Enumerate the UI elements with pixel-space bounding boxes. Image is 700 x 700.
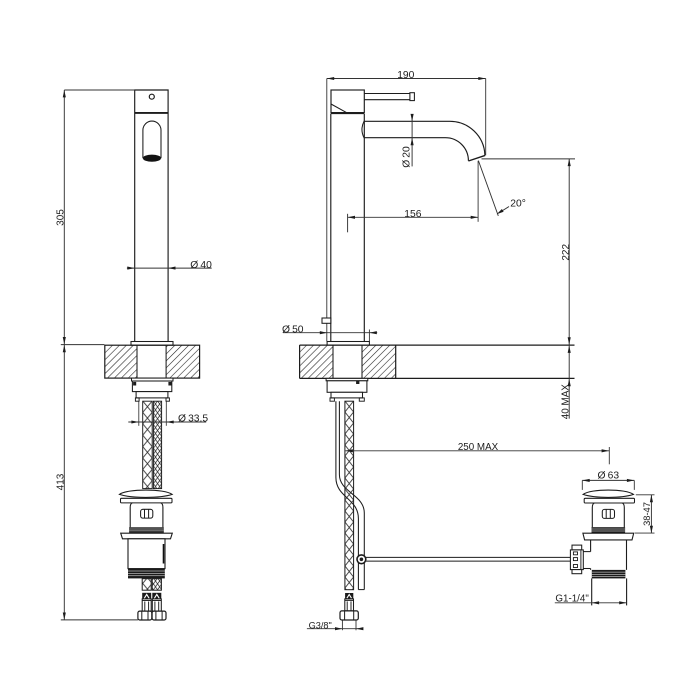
svg-text:Ø 40: Ø 40 (190, 260, 212, 271)
svg-text:250 MAX: 250 MAX (458, 442, 499, 453)
svg-text:305: 305 (56, 209, 67, 226)
svg-text:40 MAX: 40 MAX (560, 384, 571, 420)
svg-text:Ø 20: Ø 20 (401, 146, 412, 168)
svg-text:222: 222 (561, 244, 572, 261)
svg-text:20°: 20° (510, 199, 526, 210)
svg-text:156: 156 (404, 209, 421, 220)
svg-text:Ø 50: Ø 50 (282, 324, 304, 335)
svg-text:190: 190 (397, 70, 414, 81)
svg-text:413: 413 (56, 473, 67, 490)
svg-text:38-47: 38-47 (642, 502, 652, 526)
svg-text:Ø 33.5: Ø 33.5 (178, 413, 208, 424)
svg-text:Ø 63: Ø 63 (598, 470, 620, 481)
